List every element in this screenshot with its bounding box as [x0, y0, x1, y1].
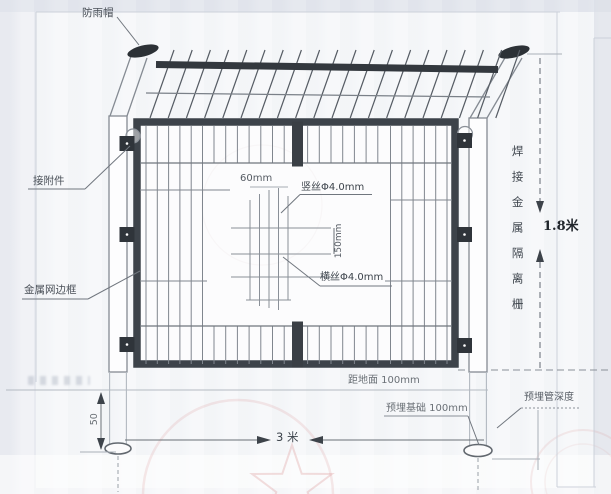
technical-drawing-page: 防雨帽 接附件 金属网边框 焊接金属隔离栅 1.8米 60mm 竖丝Φ4.0mm…: [0, 0, 611, 494]
embedded-pipe-depth-label: 预埋管深度: [524, 392, 574, 403]
ground-lines: [6, 370, 609, 390]
attachment-label: 接附件: [33, 176, 65, 188]
left-rain-cap: [126, 42, 160, 60]
wire-spacing-v-label: 150mm: [335, 221, 345, 261]
rain-cap-label: 防雨帽: [82, 8, 114, 20]
height-dimension: 1.8米: [543, 220, 579, 234]
faint-annotation: [28, 376, 90, 385]
fence-title-vertical: 焊接金属隔离栅: [511, 145, 524, 335]
embed-depth-dimension: 50: [90, 410, 100, 428]
top-rails: [146, 65, 498, 98]
right-rain-cap: [497, 43, 531, 61]
embedded-foundation-label: 预埋基础 100mm: [386, 403, 468, 414]
horizontal-wire-label: 横丝Φ4.0mm: [320, 272, 383, 283]
top-thin-wire: [146, 93, 490, 97]
ground-clearance-label: 距地面 100mm: [348, 375, 420, 386]
wire-spacing-h-label: 60mm: [240, 173, 272, 184]
width-dimension: 3 米: [276, 431, 298, 444]
top-dark-rail: [156, 65, 498, 70]
right-pipe-end: [464, 445, 492, 457]
vertical-wire-label: 竖丝Φ4.0mm: [301, 182, 364, 193]
mesh-frame-label: 金属网边框: [24, 285, 77, 297]
angled-top-mesh: [150, 50, 520, 118]
